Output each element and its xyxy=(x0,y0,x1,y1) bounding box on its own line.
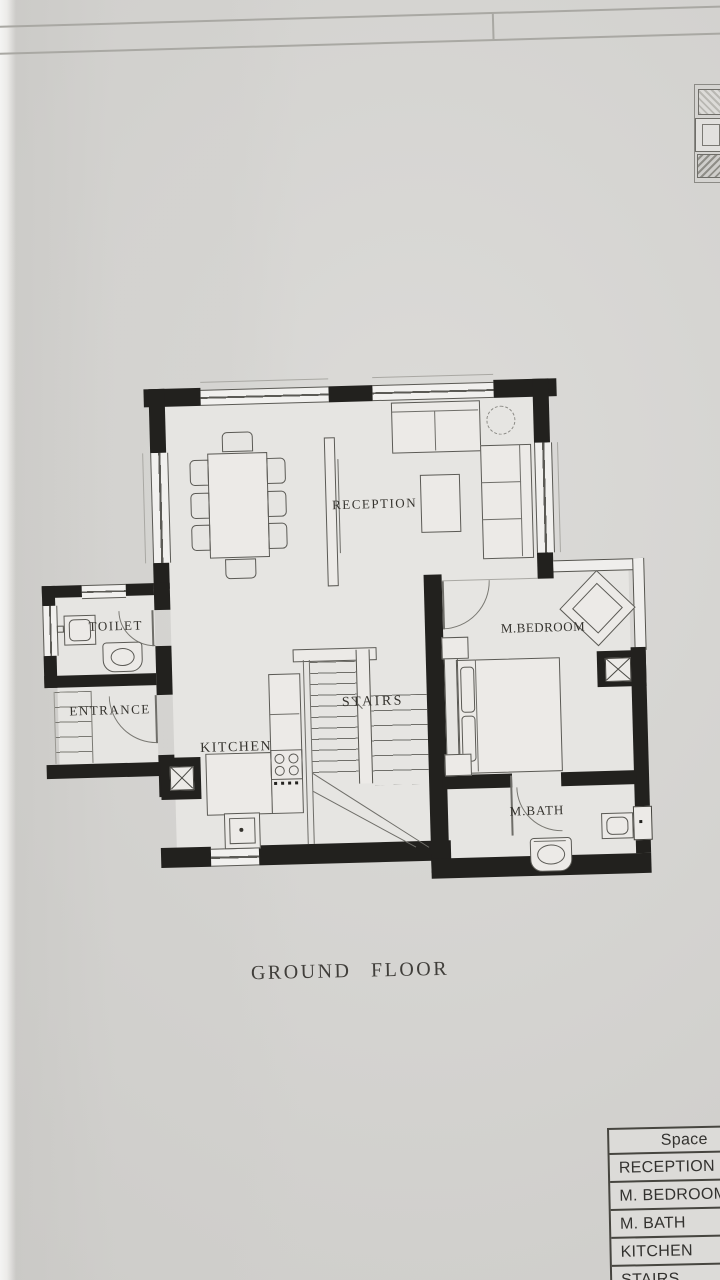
pillow xyxy=(460,667,475,713)
window xyxy=(211,847,259,866)
spaces-table-row: M. BATH xyxy=(611,1208,720,1239)
room-label-kitchen: KITCHEN xyxy=(200,739,272,757)
spaces-table-header: Space xyxy=(609,1127,720,1155)
wall-segment xyxy=(532,378,550,442)
window xyxy=(534,442,555,552)
spaces-table: Space RECEPTION M. BEDROOM M. BATH KITCH… xyxy=(607,1125,720,1280)
nightstand xyxy=(441,637,469,660)
wc-sink-tap xyxy=(57,626,64,633)
cooktop-knob xyxy=(288,782,291,785)
wall-segment xyxy=(155,646,172,695)
chair xyxy=(222,431,254,452)
cooktop-knob xyxy=(281,782,284,785)
room-label-reception: RECEPTION xyxy=(332,495,417,513)
wall-segment xyxy=(537,552,554,578)
cooktop xyxy=(270,749,303,780)
bath-sink-basin xyxy=(606,816,628,835)
coffee-table xyxy=(420,474,462,533)
spaces-table-row: M. BEDROOM xyxy=(610,1180,720,1211)
wall-segment xyxy=(328,385,372,402)
entry-steps xyxy=(54,691,94,764)
cooktop-knob xyxy=(295,781,298,784)
window-sill xyxy=(142,453,146,563)
room-label-m-bath: M.BATH xyxy=(509,802,564,819)
chair xyxy=(268,523,288,550)
duct-shaft-inner xyxy=(605,657,632,682)
wall-segment xyxy=(148,389,166,453)
wall-segment xyxy=(42,586,56,606)
drawing-title: GROUND FLOOR xyxy=(250,958,450,986)
chair xyxy=(225,558,257,579)
window-sill xyxy=(557,442,561,552)
wall-segment xyxy=(561,770,636,786)
chair xyxy=(267,491,287,518)
nightstand xyxy=(444,754,472,777)
window-sill xyxy=(372,374,493,378)
window xyxy=(372,382,493,401)
room-label-stairs: STAIRS xyxy=(342,693,405,711)
wall-segment xyxy=(161,847,212,868)
kitchen-counter-strip xyxy=(268,673,304,814)
vanity-knob xyxy=(639,820,642,823)
bath-vanity xyxy=(633,806,653,841)
window-sill xyxy=(200,378,328,382)
window xyxy=(150,453,171,563)
floor-plan-photo: RECEPTION TOILET ENTRANCE KITCHEN STAIRS… xyxy=(0,0,720,1280)
wall-segment xyxy=(154,583,171,610)
dining-table xyxy=(207,452,270,559)
cooktop-knob xyxy=(274,782,277,785)
chair xyxy=(189,460,209,487)
spaces-table-row: KITCHEN xyxy=(611,1236,720,1267)
stair-treads xyxy=(310,661,359,776)
chair xyxy=(190,493,210,520)
window xyxy=(82,584,126,599)
thin-wall xyxy=(632,558,646,650)
thin-wall xyxy=(553,558,643,572)
spaces-table-row: RECEPTION xyxy=(610,1152,720,1183)
wall-segment xyxy=(126,583,154,596)
spaces-table-row: STAIRS xyxy=(612,1264,720,1280)
kitchen-counter xyxy=(205,752,273,816)
ground-floor-plan: RECEPTION TOILET ENTRANCE KITCHEN STAIRS… xyxy=(0,0,720,1280)
door-leaf xyxy=(155,695,158,743)
chair xyxy=(266,458,286,485)
sofa-three-seat xyxy=(480,444,534,559)
chair xyxy=(191,525,211,552)
room-label-m-bedroom: M.BEDROOM xyxy=(501,619,586,637)
room-label-entrance: ENTRANCE xyxy=(69,701,151,719)
duct-shaft-inner xyxy=(170,766,195,791)
wall-segment xyxy=(47,762,161,779)
room-label-toilet: TOILET xyxy=(88,617,143,634)
door-arc-bedroom xyxy=(442,580,491,629)
